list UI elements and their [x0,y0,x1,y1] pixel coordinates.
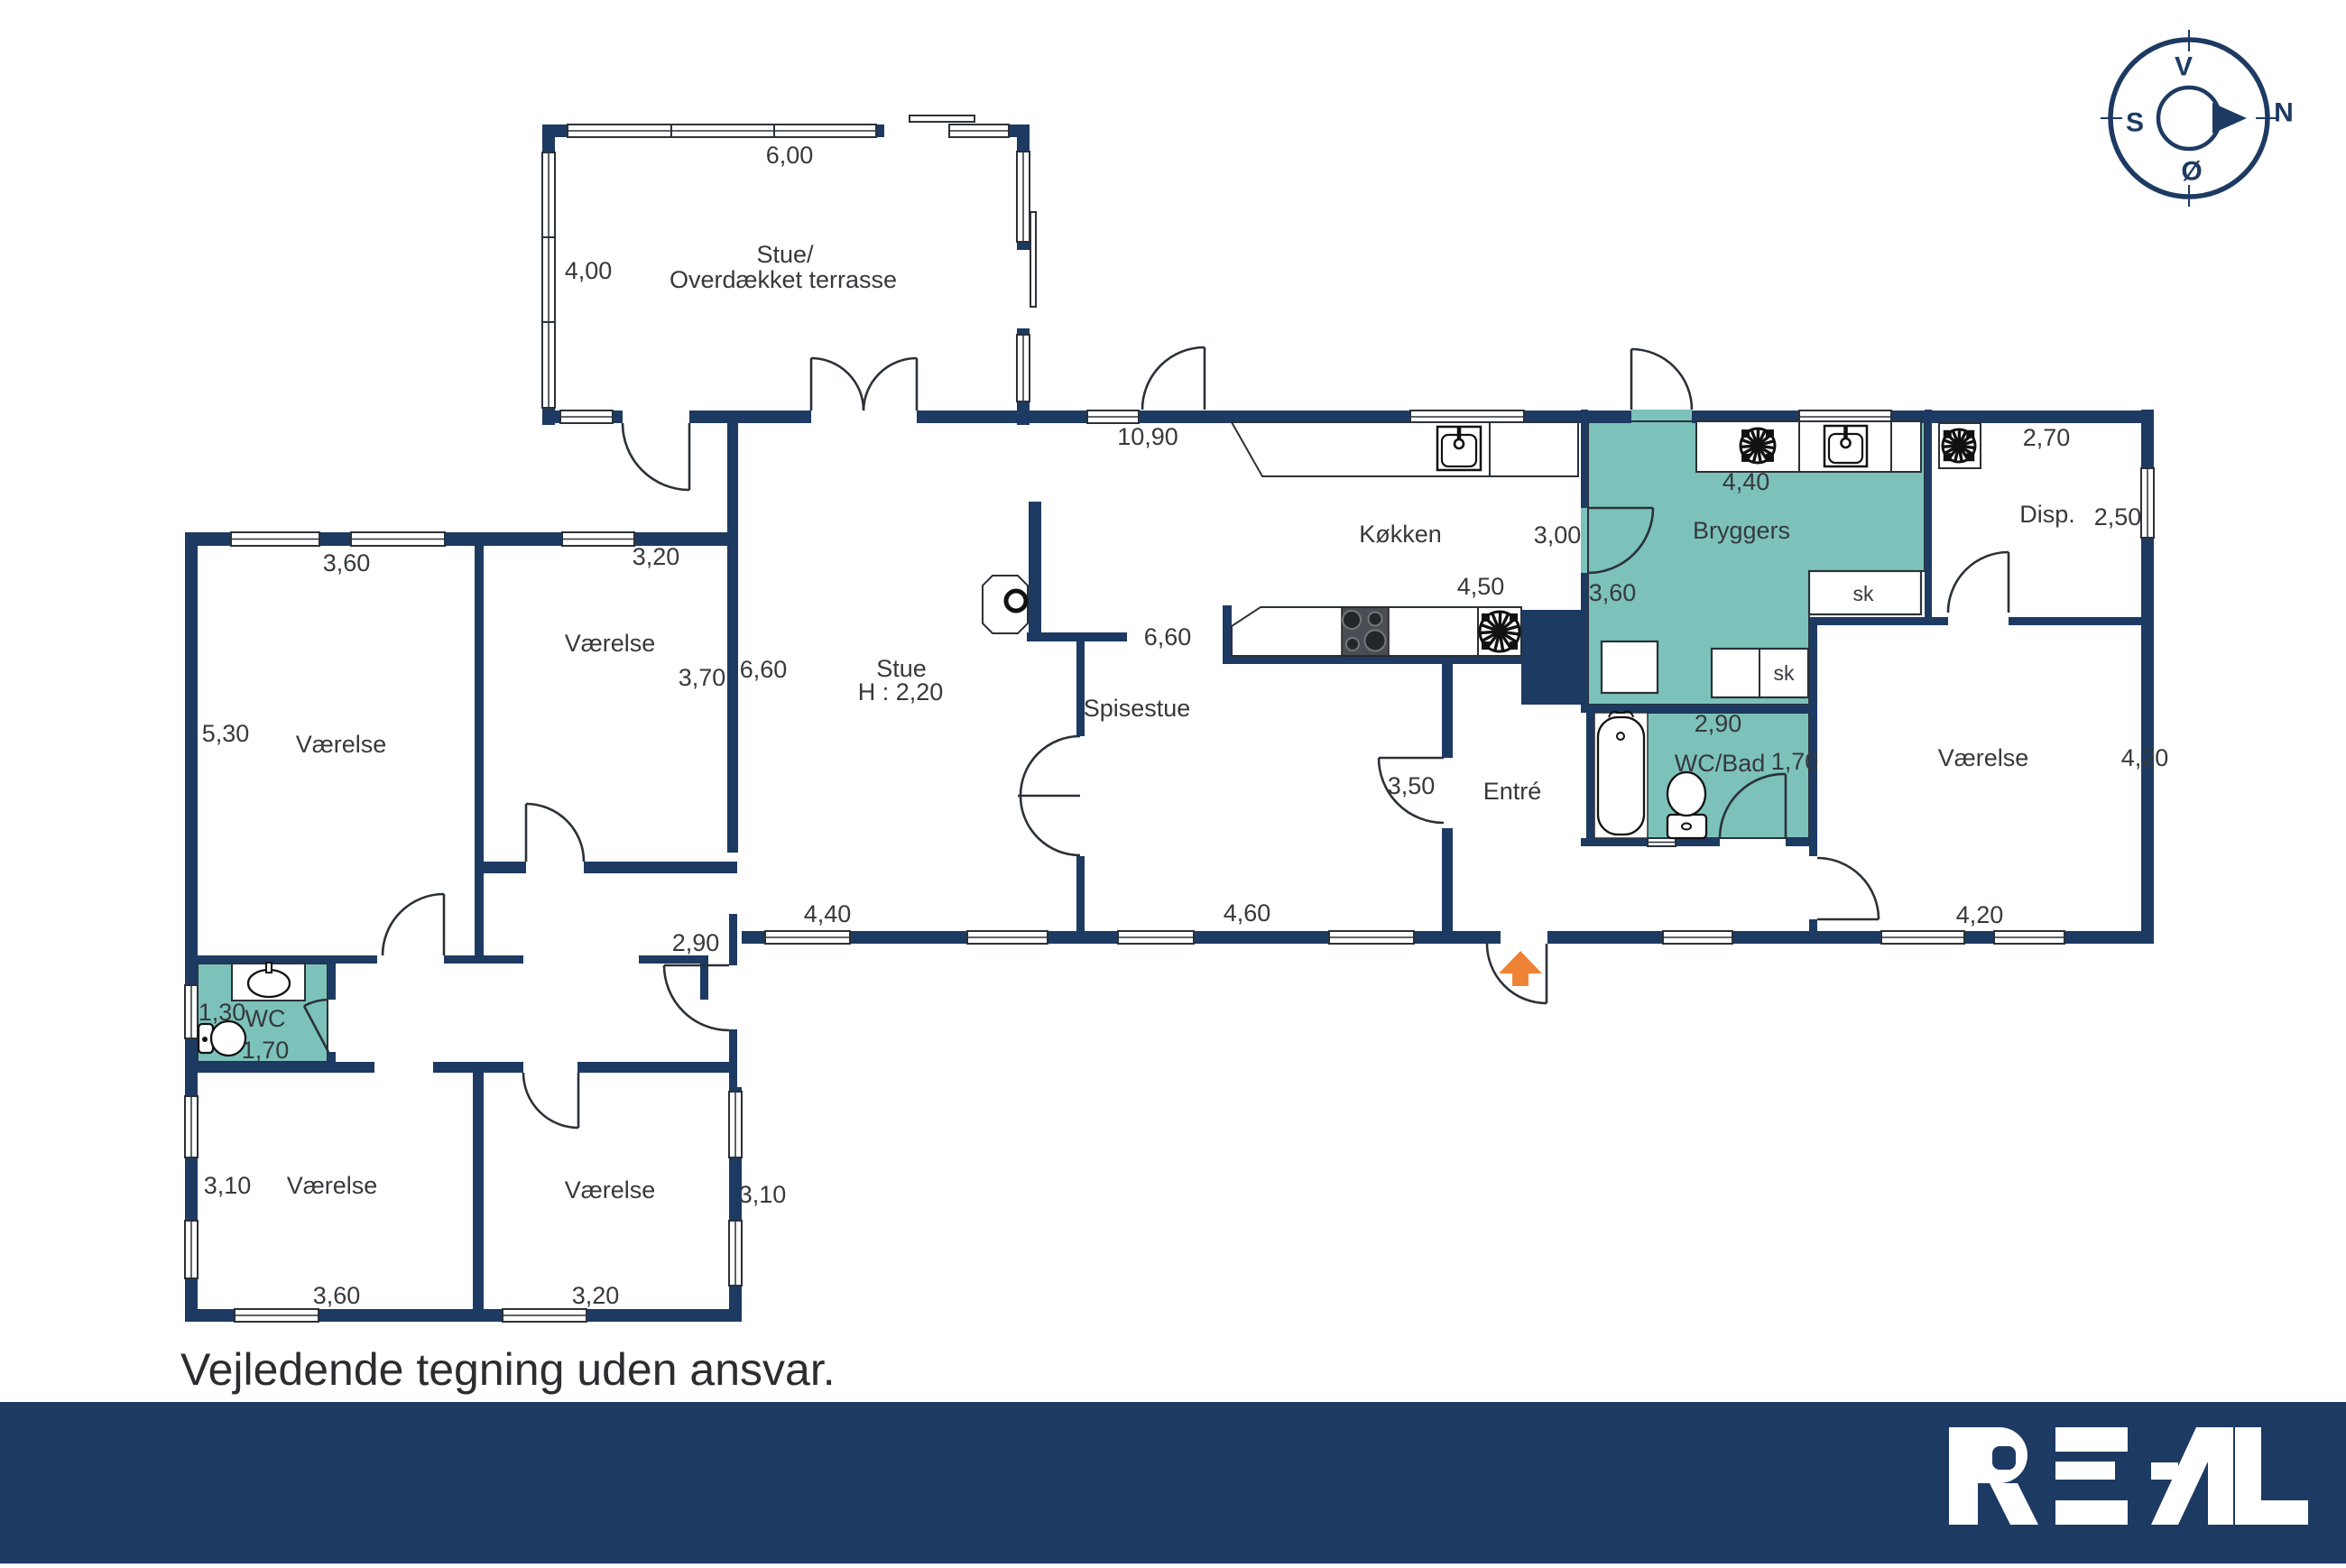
svg-text:6,60: 6,60 [1144,623,1192,650]
svg-text:1,30: 1,30 [199,999,246,1026]
svg-text:Bryggers: Bryggers [1693,517,1790,544]
svg-text:1,70: 1,70 [1771,748,1819,775]
svg-text:4,40: 4,40 [1723,468,1770,495]
svg-text:Entré: Entré [1483,778,1542,805]
svg-text:5,30: 5,30 [202,720,250,747]
svg-text:N: N [2274,98,2294,128]
svg-text:4,60: 4,60 [1224,899,1271,927]
svg-text:2,90: 2,90 [1695,710,1742,737]
svg-text:Stue/: Stue/ [756,241,814,268]
svg-text:2,90: 2,90 [672,929,720,956]
svg-text:6,00: 6,00 [766,142,814,169]
svg-text:3,50: 3,50 [1388,772,1436,799]
svg-text:4,20: 4,20 [2121,744,2169,771]
svg-text:H : 2,20: H : 2,20 [858,678,944,706]
svg-text:sk: sk [1853,582,1875,605]
svg-text:3,10: 3,10 [204,1172,252,1199]
svg-text:6,60: 6,60 [740,656,788,683]
svg-text:sk: sk [1774,661,1796,685]
svg-text:3,70: 3,70 [679,664,726,691]
svg-text:Spisestue: Spisestue [1084,695,1191,722]
svg-text:Værelse: Værelse [287,1172,378,1199]
svg-text:3,60: 3,60 [323,549,371,576]
svg-text:Værelse: Værelse [565,1176,656,1204]
svg-text:3,10: 3,10 [739,1181,787,1208]
svg-text:2,70: 2,70 [2023,424,2071,451]
svg-text:4,00: 4,00 [565,257,613,284]
svg-text:1,70: 1,70 [242,1037,290,1064]
svg-text:Overdækket terrasse: Overdækket terrasse [670,266,897,293]
svg-text:Disp.: Disp. [2019,501,2075,528]
svg-text:Ø: Ø [2181,157,2202,187]
svg-text:WC/Bad: WC/Bad [1675,750,1766,777]
svg-text:Værelse: Værelse [296,731,387,758]
svg-text:Værelse: Værelse [1938,744,2029,771]
svg-text:3,60: 3,60 [313,1282,361,1309]
svg-text:3,20: 3,20 [572,1282,620,1309]
svg-text:10,90: 10,90 [1117,423,1178,450]
svg-text:4,50: 4,50 [1457,573,1505,600]
svg-text:3,20: 3,20 [633,543,680,570]
svg-text:V: V [2175,52,2193,82]
svg-text:S: S [2126,108,2144,138]
svg-text:Værelse: Værelse [565,630,656,657]
svg-text:Køkken: Køkken [1359,521,1442,548]
svg-text:WC: WC [245,1005,286,1032]
svg-text:4,40: 4,40 [804,900,852,927]
svg-text:Vejledende tegning uden ansvar: Vejledende tegning uden ansvar. [180,1344,836,1395]
svg-text:2,50: 2,50 [2094,503,2142,530]
svg-text:4,20: 4,20 [1956,901,2004,928]
svg-text:3,00: 3,00 [1534,521,1582,549]
svg-text:3,60: 3,60 [1589,579,1637,606]
